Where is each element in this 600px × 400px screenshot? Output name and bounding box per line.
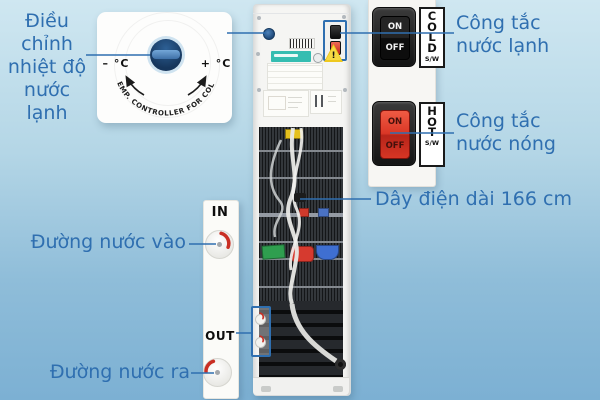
out-label: OUT xyxy=(203,329,237,343)
small-blue-tag xyxy=(318,208,329,217)
dial-plus-label: + °C xyxy=(198,57,234,70)
valve-area-highlight-box xyxy=(251,306,271,357)
cord-grommet xyxy=(335,359,346,370)
callout-temp-line1: Điều xyxy=(2,10,92,33)
unit-foot xyxy=(261,386,271,392)
barcode-sticker xyxy=(289,38,315,49)
grille-bar xyxy=(259,150,343,152)
mini-cold-switch xyxy=(330,25,341,39)
panel-seam xyxy=(253,13,349,14)
dial-minus-label: – °C xyxy=(100,57,132,70)
callout-hot-line2: nước nóng xyxy=(456,133,556,156)
hot-switch: ON OFF xyxy=(372,101,416,166)
cold-switch-rocker: ON OFF xyxy=(380,16,410,60)
inlet-knob xyxy=(205,230,234,259)
cold-switch-tag: COLD S/W xyxy=(419,7,445,68)
callout-cold-line2: nước lạnh xyxy=(456,35,549,58)
hot-switch-on-label: ON xyxy=(388,118,402,127)
hot-switch-off-label: OFF xyxy=(386,142,405,151)
callout-hot-switch: Công tắc nước nóng xyxy=(456,110,556,156)
circuit-diagram-sticker xyxy=(310,90,342,114)
screw-icon xyxy=(257,88,261,92)
red-tag xyxy=(291,246,314,262)
water-dispenser-rear-diagram: ! – °C + °C O xyxy=(0,0,600,400)
hot-tag-sub: S/W xyxy=(421,140,443,147)
screw-icon xyxy=(257,16,261,20)
hot-switch-rocker: ON OFF xyxy=(380,110,410,159)
certification-icon xyxy=(313,53,323,63)
outlet-valve-knob xyxy=(255,337,266,348)
cold-switch-on-label: ON xyxy=(388,23,402,32)
cold-tag-sub: S/W xyxy=(421,56,443,63)
callout-water-in: Đường nước vào xyxy=(24,231,186,254)
callout-cold-line1: Công tắc xyxy=(456,12,549,35)
temp-dial-slot xyxy=(152,50,180,59)
callout-temp-line3: nhiệt độ xyxy=(2,56,92,79)
grille-bar xyxy=(259,241,343,243)
in-label: IN xyxy=(203,205,237,220)
grille-bar xyxy=(259,177,343,179)
unit-foot xyxy=(333,386,343,392)
inlet-valve-knob xyxy=(255,314,266,325)
wiring-diagram-sticker xyxy=(263,90,309,117)
cold-tag-text: COLD xyxy=(426,11,438,53)
screw-icon xyxy=(343,88,347,92)
callout-temp-adjust: Điều chỉnh nhiệt độ nước lạnh xyxy=(2,10,92,125)
callout-temp-line4: nước lạnh xyxy=(2,79,92,125)
small-red-tag xyxy=(299,208,309,217)
compressor-section xyxy=(259,301,343,377)
callout-hot-line1: Công tắc xyxy=(456,110,556,133)
brand-label xyxy=(271,51,311,62)
screw-icon xyxy=(256,52,260,56)
blue-tag xyxy=(316,245,339,260)
spec-sticker xyxy=(267,63,323,90)
screw-icon xyxy=(342,15,346,19)
hot-switch-tag: HOT S/W xyxy=(419,102,445,167)
temp-controller-knob-on-unit xyxy=(263,28,275,40)
grille-bar xyxy=(259,286,343,288)
callout-cold-switch: Công tắc nước lạnh xyxy=(456,12,549,58)
small-yellow-label xyxy=(285,129,303,139)
cold-switch: ON OFF xyxy=(372,7,416,67)
hot-tag-text: HOT xyxy=(426,106,438,138)
brand-label-text-bar xyxy=(274,54,298,57)
callout-water-out: Đường nước ra xyxy=(40,361,190,384)
callout-temp-line2: chỉnh xyxy=(2,33,92,56)
cold-switch-off-label: OFF xyxy=(386,44,405,53)
callout-power-cord: Dây điện dài 166 cm xyxy=(375,188,572,211)
outlet-knob xyxy=(203,358,232,387)
green-tag xyxy=(262,244,286,260)
